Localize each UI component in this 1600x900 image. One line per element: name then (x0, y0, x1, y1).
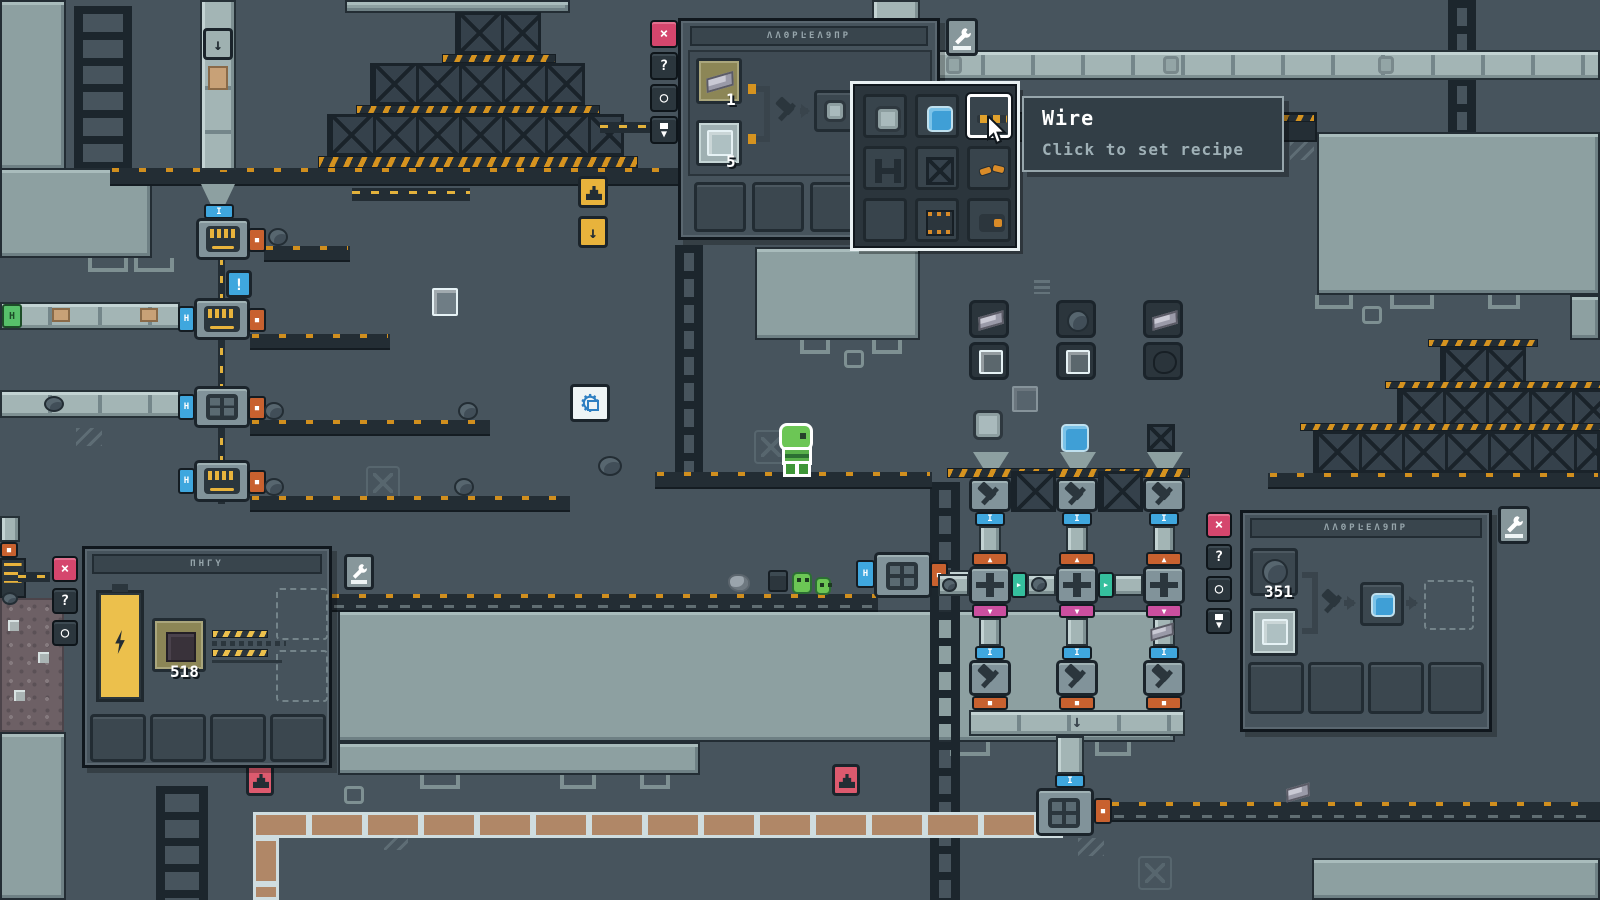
coal-icon (1153, 351, 1177, 374)
crate-row (1313, 431, 1600, 473)
queue-slot[interactable] (1428, 662, 1484, 714)
valve: H (2, 304, 22, 328)
recipe-slot-metal-plate[interactable] (863, 94, 907, 138)
player-eye (800, 433, 806, 439)
output-connector-orange[interactable]: ■ (0, 542, 18, 558)
creature (815, 577, 831, 595)
down-arrow-glyph: ↓ (588, 223, 598, 242)
inventory-slot[interactable] (210, 714, 266, 762)
io-connector-blue[interactable]: H (178, 394, 195, 420)
queue-slot[interactable] (1248, 662, 1304, 714)
platform (1268, 473, 1600, 487)
panel-title-text: ΛΛΘΡĿΕΛ9ΠΡ (1324, 523, 1408, 533)
io-connector-blue[interactable]: I (1055, 774, 1085, 788)
connector-glyph: ■ (255, 404, 259, 412)
fan-decal (366, 466, 400, 500)
hazard-bar (318, 156, 638, 168)
pipe (1066, 618, 1088, 646)
wall-port (344, 786, 364, 804)
wire-cable (18, 572, 50, 582)
output-connector-orange[interactable]: ■ (1094, 798, 1112, 824)
connector-glyph: I (216, 207, 221, 217)
metal-plate-icon (824, 100, 846, 122)
platform (250, 496, 570, 510)
alert-glyph: ! (234, 275, 244, 294)
output-connector-orange[interactable]: ■ (1146, 696, 1182, 710)
connector-glyph: ▲ (988, 555, 993, 564)
item-stone (454, 478, 474, 496)
connector-glyph: ■ (7, 546, 11, 554)
metal-ingot-icon (1152, 310, 1177, 331)
crate-row (327, 114, 624, 156)
io-connector-blue[interactable]: I (1062, 646, 1092, 660)
panel-title: ΠΗΓΥ (92, 554, 322, 574)
item-stone (942, 578, 957, 592)
assembler-machine[interactable] (1056, 660, 1098, 696)
ladder (675, 245, 703, 473)
close-button[interactable]: × (52, 556, 78, 582)
assembler-machine[interactable] (1143, 478, 1185, 512)
glass-plate-icon (979, 350, 1003, 374)
distributor-machine[interactable] (1056, 566, 1098, 604)
hazard-bar (442, 54, 556, 63)
connector-glyph: I (987, 648, 992, 658)
pin-button[interactable]: ○ (650, 84, 678, 112)
assembler-sign (578, 176, 608, 208)
metal-ingot-icon (978, 310, 1003, 331)
panel-title: ΛΛΘΡĿΕΛ9ΠΡ (1250, 518, 1482, 538)
funnel (1060, 452, 1096, 468)
output-connector-magenta[interactable]: ▼ (1146, 604, 1182, 618)
pipe-hanger (1315, 295, 1353, 309)
flow-node (748, 84, 756, 94)
conveyor-belt (330, 594, 878, 610)
furnace-icon (204, 306, 240, 332)
platform (264, 246, 350, 260)
io-connector-blue[interactable]: I (1149, 646, 1179, 660)
item-stone (2, 592, 18, 605)
stone-ore-icon (1067, 310, 1089, 332)
upgrade-slot[interactable] (276, 588, 328, 640)
hazard-bar (1385, 381, 1600, 389)
output-connector-orange[interactable]: ■ (248, 470, 266, 494)
inventory-slot[interactable] (90, 714, 146, 762)
io-connector-blue[interactable]: H (856, 560, 875, 588)
pipe (0, 516, 20, 542)
metal-plate-icon (973, 410, 1003, 440)
recipe-slot-circuit[interactable] (915, 198, 959, 242)
connector-glyph: ▶ (1104, 581, 1108, 589)
connector-glyph: I (987, 514, 992, 524)
crate-icon (926, 157, 954, 185)
game-viewport: ↓ H I ■ ! H ■ H ■ H ■ ■ (0, 0, 1600, 900)
pipe (1056, 736, 1084, 774)
wrench-button[interactable] (344, 554, 374, 590)
connector-glyph: H (863, 569, 868, 579)
pipe (979, 618, 1001, 646)
assembler-machine[interactable] (1143, 660, 1185, 696)
tooltip-subtitle: Click to set recipe (1042, 140, 1244, 159)
connector-glyph: ■ (255, 316, 259, 324)
pipe (0, 390, 180, 418)
wall-panel (1317, 132, 1600, 295)
splitter-icon (206, 394, 238, 420)
wall-port (1362, 306, 1382, 324)
pipe (1066, 526, 1088, 552)
crate (1098, 471, 1143, 512)
close-button[interactable]: × (650, 20, 678, 48)
output-connector-teal[interactable]: ▶ (1011, 572, 1027, 598)
pipe-port (1378, 56, 1394, 74)
connector-glyph: I (1067, 776, 1072, 786)
creature (792, 572, 812, 594)
hazard-bar (1300, 423, 1600, 431)
output-connector-orange[interactable]: ■ (248, 228, 266, 252)
flow-line (764, 86, 770, 142)
conveyor-belt (1110, 802, 1600, 820)
item-stone (264, 478, 284, 496)
connector-glyph: ▼ (1162, 607, 1167, 616)
item-stone (598, 456, 622, 476)
panel-title-text: ΛΛΘΡĿΕΛ9ΠΡ (767, 31, 851, 41)
ghost-slot (1056, 342, 1096, 380)
crate (1011, 471, 1056, 512)
connector-glyph: I (1074, 514, 1079, 524)
pipe-hanger (1488, 295, 1520, 309)
output-connector-teal[interactable]: ▶ (1098, 572, 1114, 598)
fuel-count: 518 (170, 662, 199, 681)
inventory-slot[interactable] (270, 714, 326, 762)
funnel (1147, 452, 1183, 468)
connector-glyph: H (184, 402, 189, 412)
item-package (208, 66, 228, 90)
help-button[interactable]: ? (1206, 544, 1232, 570)
io-connector-blue[interactable]: I (1062, 512, 1092, 526)
input-connector-orange[interactable]: ▲ (972, 552, 1008, 566)
flow-arrow (800, 108, 808, 114)
connector-glyph: ▲ (1075, 555, 1080, 564)
filter-button[interactable]: ▼ (650, 116, 678, 144)
input-slot-glass[interactable] (1250, 608, 1298, 656)
io-connector-blue[interactable]: H (178, 468, 195, 494)
coil-icon (978, 161, 1006, 181)
connector-glyph: ▼ (1075, 607, 1080, 616)
recipe-slot-plug[interactable] (967, 198, 1011, 242)
recipe-slot-crate[interactable] (915, 146, 959, 190)
wrench-button[interactable] (1498, 506, 1530, 544)
recipe-slot-rail[interactable] (863, 146, 907, 190)
crate-row (455, 12, 541, 54)
scratch-decal (1078, 838, 1104, 856)
ore-ground (0, 598, 64, 732)
connector-glyph: ■ (1075, 699, 1079, 707)
hazard-bar (1283, 114, 1315, 122)
pipe-hanger (1095, 742, 1131, 756)
alert-bubble: ! (226, 270, 252, 298)
wall-port (844, 350, 864, 368)
connector-glyph: ▲ (1162, 555, 1167, 564)
pipe (933, 50, 1600, 80)
progress-dots (212, 641, 286, 646)
wall-panel (1312, 858, 1600, 900)
tower-glyph (586, 186, 602, 200)
connector-glyph: I (1161, 648, 1166, 658)
funnel (973, 452, 1009, 468)
pipe-hanger (1390, 295, 1434, 309)
platform (250, 420, 490, 434)
item-chest (768, 570, 788, 592)
flow-arrow (1406, 600, 1416, 606)
pipe-port (1163, 56, 1179, 74)
inventory-slot[interactable] (150, 714, 206, 762)
connector-glyph: H (184, 314, 189, 324)
ghost-slot (969, 342, 1009, 380)
blue-plate-icon (1061, 424, 1089, 452)
glass-plate-icon (1066, 350, 1090, 374)
mouse-cursor (986, 116, 1012, 150)
pipe-port (946, 56, 962, 74)
wall-panel (0, 732, 66, 900)
tooltip-title: Wire (1042, 106, 1094, 130)
ghost-slot (1143, 342, 1183, 380)
splitter-icon (886, 562, 918, 590)
warning-sign (832, 764, 860, 796)
connector-glyph: ■ (1101, 807, 1105, 815)
pipe-hanger (560, 775, 596, 789)
output-connector-orange[interactable]: ■ (248, 308, 266, 332)
distributor-machine[interactable] (1143, 566, 1185, 604)
ore-sparkle (38, 652, 49, 663)
io-connector-blue[interactable]: I (1149, 512, 1179, 526)
furnace-icon (204, 468, 240, 494)
tower-glyph (839, 774, 855, 788)
connector-glyph: H (184, 476, 189, 486)
queue-slot[interactable] (1368, 662, 1424, 714)
item-stone (268, 228, 288, 246)
glass-decal (1012, 386, 1038, 412)
ladder (74, 6, 132, 168)
ladder (156, 786, 208, 900)
rail-icon (875, 159, 901, 183)
circuit-scrap-icon (166, 632, 196, 662)
gear-center (587, 400, 599, 411)
pipe-hanger (800, 340, 830, 354)
pin-button[interactable]: ○ (52, 620, 78, 646)
item-ingot (1286, 782, 1310, 802)
connector-glyph: ■ (1162, 699, 1166, 707)
item-package (140, 308, 158, 322)
wrench-button[interactable] (946, 18, 978, 56)
pin-button[interactable]: ○ (1206, 576, 1232, 602)
down-sign: ↓ (578, 216, 608, 248)
tower-glyph (253, 774, 269, 788)
help-button[interactable]: ? (52, 588, 78, 614)
mini-belt (352, 188, 470, 201)
output-connector-magenta[interactable]: ▼ (1059, 604, 1095, 618)
ghost-slot (969, 300, 1009, 338)
wall-panel (755, 247, 920, 340)
pipe-down-arrow: ↓ (1066, 712, 1088, 734)
hazard-bar (947, 468, 1190, 478)
input-count: 1 (726, 90, 736, 109)
assembler-machine[interactable] (1056, 478, 1098, 512)
item-package (52, 308, 70, 322)
connector-glyph: ▶ (1017, 581, 1021, 589)
pipe-hanger (640, 775, 670, 789)
wrench-icon (350, 563, 368, 581)
heat-pipe (253, 812, 1063, 838)
splitter-icon (1048, 798, 1080, 828)
furnace-icon (206, 226, 240, 252)
pipe-hanger (872, 340, 902, 354)
input-connector-orange[interactable]: ▲ (1059, 552, 1095, 566)
scratch-decal (1290, 142, 1314, 160)
hazard-bar (356, 105, 600, 114)
item-glass (432, 288, 458, 316)
pipe (1114, 574, 1143, 596)
funnel (201, 184, 235, 204)
glass-plate-icon (1262, 619, 1288, 645)
flow-node (748, 134, 756, 144)
wall-panel (0, 0, 66, 170)
wrench-icon (1504, 515, 1524, 535)
upgrade-slot[interactable] (276, 650, 328, 702)
progress-line (212, 660, 282, 663)
connector-glyph: ■ (255, 478, 259, 486)
output-slot[interactable] (814, 90, 856, 132)
ghost-slot (1056, 300, 1096, 338)
progress-bar (212, 630, 268, 638)
item-stone (44, 396, 64, 412)
help-button[interactable]: ? (650, 52, 678, 80)
ore-sparkle (8, 620, 19, 631)
warning-sign (246, 764, 274, 796)
pipe-hanger (420, 775, 460, 789)
io-connector-blue[interactable]: H (178, 306, 195, 332)
item-stone (458, 402, 478, 420)
connector-glyph: ■ (255, 236, 259, 244)
metal-plate-icon (875, 106, 901, 132)
connector-glyph: ▼ (988, 607, 993, 616)
item-stone (1031, 577, 1047, 592)
panel-title: ΛΛΘΡĿΕΛ9ΠΡ (690, 26, 928, 46)
io-connector-blue[interactable]: I (975, 512, 1005, 526)
output-slot[interactable] (1360, 582, 1404, 626)
input-connector-orange[interactable]: ▲ (1146, 552, 1182, 566)
pipe (979, 526, 1001, 552)
crate-icon (1147, 424, 1175, 452)
blue-plate-icon (1371, 593, 1395, 617)
player-strap (785, 454, 809, 458)
export-slot[interactable] (1424, 580, 1474, 630)
item-stone (264, 402, 284, 420)
recipe-slot-empty[interactable] (863, 198, 907, 242)
circuit-icon (926, 210, 954, 236)
assembler-machine[interactable] (969, 478, 1011, 512)
wall-panel (1570, 295, 1600, 340)
wrench-icon (952, 27, 972, 47)
pipe (1153, 526, 1175, 552)
connector-glyph: I (1074, 648, 1079, 658)
connector-glyph: I (1161, 514, 1166, 524)
output-connector-orange[interactable]: ■ (972, 696, 1008, 710)
pipe-hanger (88, 258, 128, 272)
down-arrow-sign: ↓ (203, 28, 233, 60)
input-count: 5 (726, 152, 736, 171)
craft-hammer-icon (772, 96, 802, 126)
list-icon (1034, 280, 1050, 294)
distributor-machine[interactable] (969, 566, 1011, 604)
io-connector-blue[interactable]: I (975, 646, 1005, 660)
io-connector-blue[interactable]: I (204, 204, 234, 219)
plug-icon (979, 214, 1005, 232)
connector-glyph: ■ (988, 699, 992, 707)
hazard-bar (1428, 339, 1538, 347)
scratch-decal (76, 428, 102, 446)
gear-sign: ⚙ (570, 384, 610, 422)
fan-decal (1138, 856, 1172, 890)
output-connector-magenta[interactable]: ▼ (972, 604, 1008, 618)
player-leg (799, 464, 808, 474)
recipe-slot-blue-plate[interactable] (915, 94, 959, 138)
blue-plate-icon (927, 106, 953, 132)
pipe-hanger (134, 258, 174, 272)
filter-button[interactable]: ▼ (1206, 608, 1232, 634)
heat-pipe (253, 838, 279, 900)
ghost-slot (1143, 300, 1183, 338)
output-connector-orange[interactable]: ■ (1059, 696, 1095, 710)
player-character (778, 420, 816, 474)
battery-terminal (112, 584, 128, 592)
queue-slot[interactable] (1308, 662, 1364, 714)
player-leg (786, 464, 795, 474)
queue-slot[interactable] (752, 182, 804, 232)
item-ore (728, 574, 750, 592)
progress-bar (212, 649, 268, 657)
down-arrow-glyph: ↓ (213, 35, 223, 54)
platform (250, 334, 390, 348)
platform (655, 472, 932, 487)
crate-row (370, 63, 585, 105)
recipe-slot-coil[interactable] (967, 146, 1011, 190)
wall-panel (338, 742, 700, 775)
queue-slot[interactable] (694, 182, 746, 232)
input-count: 351 (1264, 582, 1293, 601)
assembler-machine[interactable] (969, 660, 1011, 696)
close-button[interactable]: × (1206, 512, 1232, 538)
panel-title-text: ΠΗΓΥ (190, 559, 224, 569)
flow-arrow (1344, 600, 1354, 606)
tooltip: Wire Click to set recipe (1022, 96, 1284, 172)
ore-sparkle (14, 690, 25, 701)
down-arrow-glyph: ↓ (1072, 712, 1082, 732)
